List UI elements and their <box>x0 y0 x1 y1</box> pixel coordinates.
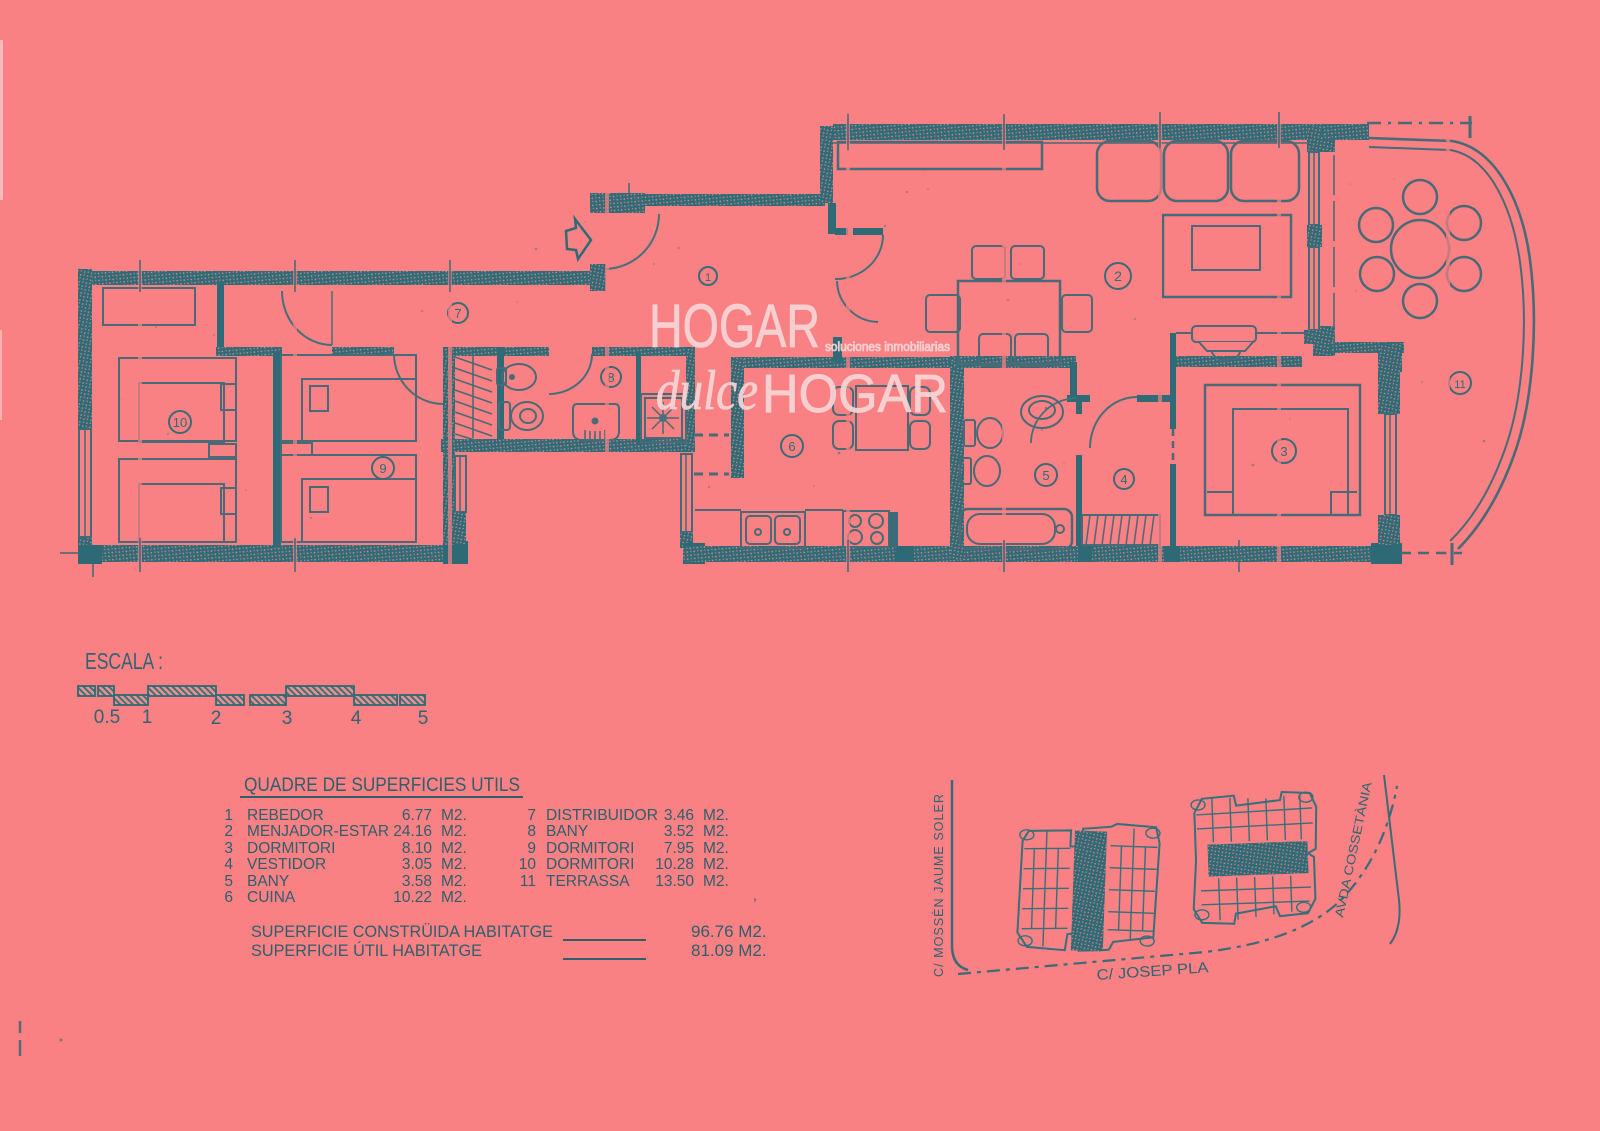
svg-text:M2.: M2. <box>703 856 729 873</box>
svg-text:M2.: M2. <box>703 823 729 840</box>
svg-text:M2.: M2. <box>441 840 467 857</box>
svg-text:3.58: 3.58 <box>402 873 432 890</box>
svg-text:5: 5 <box>224 873 233 890</box>
svg-text:TERRASSA: TERRASSA <box>546 873 630 890</box>
svg-text:,: , <box>753 887 757 903</box>
svg-text:3: 3 <box>282 708 293 729</box>
svg-text:2: 2 <box>224 823 233 840</box>
svg-text:3.05: 3.05 <box>402 856 432 873</box>
svg-text:M2.: M2. <box>441 807 467 824</box>
svg-text:7: 7 <box>527 807 536 824</box>
svg-text:0.5: 0.5 <box>94 707 120 728</box>
svg-text:10: 10 <box>173 415 187 430</box>
svg-text:VESTIDOR: VESTIDOR <box>247 856 326 873</box>
svg-text:96.76 M2.: 96.76 M2. <box>691 922 767 941</box>
svg-text:81.09 M2.: 81.09 M2. <box>691 941 767 960</box>
svg-text:8.10: 8.10 <box>402 840 433 857</box>
svg-text:3.46: 3.46 <box>664 807 694 824</box>
svg-text:1: 1 <box>705 272 711 284</box>
svg-text:3.52: 3.52 <box>664 823 694 840</box>
svg-text:2: 2 <box>211 708 222 729</box>
svg-text:6: 6 <box>224 889 233 906</box>
svg-text:6: 6 <box>788 439 795 454</box>
svg-text:9: 9 <box>379 461 386 476</box>
svg-text:11: 11 <box>520 873 536 890</box>
svg-text:6.77: 6.77 <box>402 807 432 824</box>
svg-text:4: 4 <box>351 708 362 729</box>
svg-text:M2.: M2. <box>441 856 467 873</box>
svg-text:1: 1 <box>224 807 233 824</box>
svg-text:M2.: M2. <box>703 807 729 824</box>
svg-text:ESCALA :: ESCALA : <box>85 648 163 674</box>
svg-text:3: 3 <box>224 840 233 857</box>
svg-text:4: 4 <box>1120 472 1127 487</box>
svg-text:HOGAR: HOGAR <box>762 364 948 424</box>
svg-text:10.22: 10.22 <box>393 889 432 906</box>
svg-text:M2.: M2. <box>441 823 467 840</box>
svg-text:M2.: M2. <box>441 889 467 906</box>
svg-text:BANY: BANY <box>546 823 588 840</box>
svg-text:dulce: dulce <box>656 360 758 422</box>
svg-text:soluciones inmobiliarias: soluciones inmobiliarias <box>825 340 950 354</box>
svg-text:4: 4 <box>224 856 233 873</box>
svg-text:9: 9 <box>527 840 536 857</box>
svg-text:DORMITORI: DORMITORI <box>247 840 335 857</box>
svg-text:2: 2 <box>1114 268 1122 284</box>
svg-text:10.28: 10.28 <box>655 856 694 873</box>
svg-text:CUINA: CUINA <box>247 889 296 906</box>
svg-text:24.16: 24.16 <box>393 823 432 840</box>
svg-text:REBEDOR: REBEDOR <box>247 807 324 824</box>
svg-text:C/ MOSSÈN JAUME SOLER: C/ MOSSÈN JAUME SOLER <box>931 793 946 977</box>
svg-text:MENJADOR-ESTAR: MENJADOR-ESTAR <box>247 823 389 840</box>
svg-text:10: 10 <box>519 856 537 873</box>
svg-text:BANY: BANY <box>247 873 289 890</box>
svg-text:DORMITORI: DORMITORI <box>546 856 634 873</box>
svg-text:DORMITORI: DORMITORI <box>546 840 634 857</box>
svg-text:13.50: 13.50 <box>655 873 694 890</box>
svg-text:8: 8 <box>527 823 536 840</box>
svg-text:7: 7 <box>454 306 461 321</box>
svg-text:5: 5 <box>418 708 429 729</box>
svg-text:7.95: 7.95 <box>664 840 694 857</box>
svg-text:M2.: M2. <box>703 873 729 890</box>
svg-text:M2.: M2. <box>703 840 729 857</box>
svg-text:SUPERFICIE CONSTRÜIDA HABITATG: SUPERFICIE CONSTRÜIDA HABITATGE <box>251 922 553 941</box>
svg-text:3: 3 <box>1280 444 1287 459</box>
svg-text:M2.: M2. <box>441 873 467 890</box>
svg-text:1: 1 <box>142 707 153 728</box>
svg-text:5: 5 <box>1042 468 1049 483</box>
svg-text:QUADRE DE SUPERFICIES UTILS: QUADRE DE SUPERFICIES UTILS <box>244 775 520 796</box>
svg-text:SUPERFICIE ÚTIL HABITATGE: SUPERFICIE ÚTIL HABITATGE <box>251 941 482 960</box>
svg-text:HOGAR: HOGAR <box>649 292 820 360</box>
svg-text:11: 11 <box>1454 379 1465 391</box>
svg-text:DISTRIBUIDOR: DISTRIBUIDOR <box>546 807 658 824</box>
